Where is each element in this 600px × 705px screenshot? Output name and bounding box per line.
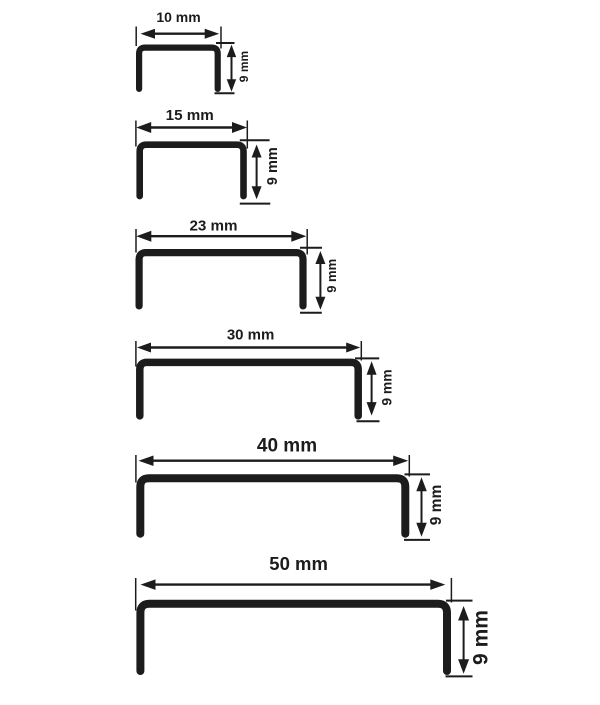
svg-text:9 mm: 9 mm	[324, 259, 339, 293]
svg-text:15 mm: 15 mm	[166, 107, 214, 124]
svg-text:30 mm: 30 mm	[227, 327, 275, 344]
svg-text:9 mm: 9 mm	[237, 51, 251, 82]
svg-text:9 mm: 9 mm	[379, 369, 395, 405]
svg-text:40 mm: 40 mm	[257, 436, 317, 457]
svg-text:23 mm: 23 mm	[189, 218, 237, 235]
svg-text:9 mm: 9 mm	[470, 610, 493, 665]
svg-text:9 mm: 9 mm	[265, 147, 281, 185]
svg-text:50 mm: 50 mm	[269, 553, 328, 574]
svg-text:9 mm: 9 mm	[428, 485, 445, 526]
svg-text:10 mm: 10 mm	[156, 9, 200, 25]
